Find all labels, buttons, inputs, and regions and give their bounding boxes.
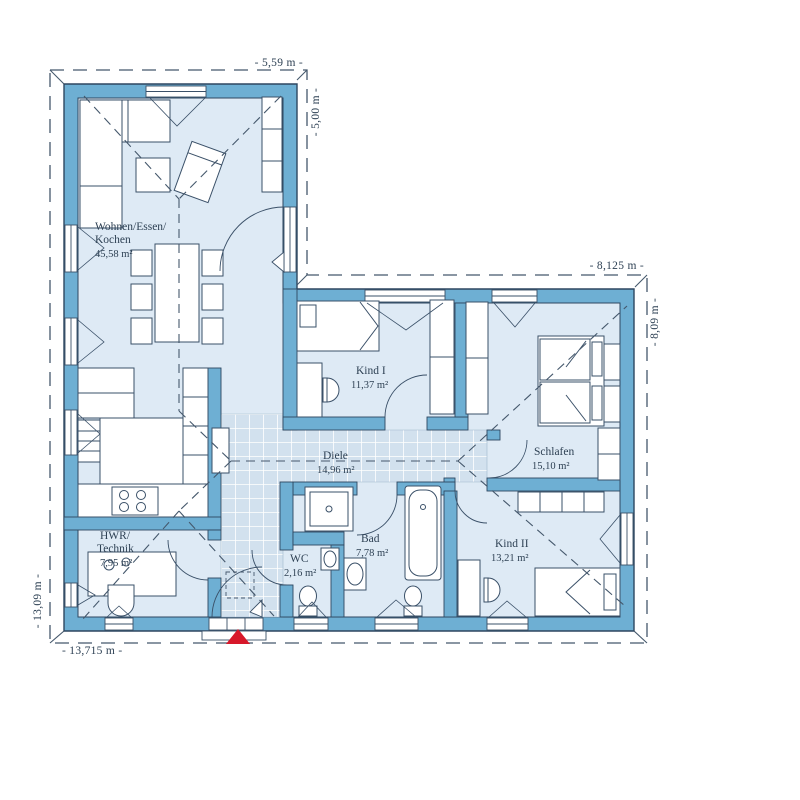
- terrace-door: [284, 207, 296, 272]
- wall-hwr-door-b: [208, 578, 221, 617]
- dim-right-side: - 8,09 m -: [649, 298, 661, 346]
- area-kind2: 13,21 m²: [491, 553, 529, 564]
- wall-wc-top: [293, 532, 344, 545]
- wall-corridor-wc-b: [280, 585, 293, 617]
- wc-sink: [324, 551, 336, 567]
- area-hwr: 7,95 m²: [100, 558, 132, 569]
- kind2-desk: [458, 560, 480, 616]
- wall-kind1-diele-b: [427, 417, 468, 430]
- label-kind2: Kind II: [495, 538, 529, 550]
- dim-wing-top: - 8,125 m -: [590, 260, 644, 272]
- label-hwr-2: Technik: [97, 543, 134, 555]
- dining-table-group: [131, 244, 223, 344]
- floor-plan-page: Wohnen/Essen/ Kochen 45,58 m² Kind I 11,…: [0, 0, 800, 800]
- wc-toilet: [300, 586, 317, 606]
- label-bad: Bad: [361, 533, 380, 545]
- window-schlafen-top: [492, 290, 537, 302]
- label-wohnen: Wohnen/Essen/: [95, 221, 167, 233]
- area-wohnen: 45,58 m²: [95, 249, 133, 260]
- bad-toilet: [405, 586, 422, 606]
- dim-top: - 5,59 m -: [255, 57, 303, 69]
- kitchen-island: [100, 418, 185, 484]
- window-hwr-bottom: [105, 618, 133, 630]
- hall-cabinet: [212, 428, 229, 473]
- label-kind1: Kind I: [356, 365, 386, 377]
- coffee-table: [136, 158, 170, 192]
- dim-right-upper: - 5,00 m -: [310, 88, 322, 136]
- label-hwr: HWR/: [100, 530, 131, 542]
- kind2-wardrobe: [518, 492, 604, 512]
- nightstand-1: [604, 344, 620, 380]
- wall-corridor-wc-a: [280, 482, 293, 550]
- wall-living-kind1: [283, 289, 297, 430]
- stove: [112, 487, 158, 515]
- floor-plan-drawing: Wohnen/Essen/ Kochen 45,58 m² Kind I 11,…: [0, 0, 800, 800]
- window-kind2-bottom: [487, 618, 528, 630]
- wall-hwr-top: [64, 517, 221, 530]
- area-schlafen: 15,10 m²: [532, 461, 570, 472]
- dim-left-side: - 13,09 m -: [32, 574, 44, 628]
- dim-bottom: - 13,715 m -: [62, 645, 122, 657]
- dining-table: [155, 244, 199, 342]
- wall-schlafen-door-stub: [487, 430, 500, 440]
- label-wohnen-2: Kochen: [95, 234, 131, 246]
- area-wc: 2,16 m²: [284, 568, 316, 579]
- wall-bad-kind2: [444, 491, 457, 617]
- wall-hwr-door-a: [208, 530, 221, 540]
- kind1-desk: [297, 363, 322, 417]
- wall-kind1-diele-a: [283, 417, 385, 430]
- tv-sideboard: [262, 97, 282, 192]
- label-wc: WC: [290, 553, 309, 565]
- area-kind1: 11,37 m²: [351, 380, 388, 391]
- window-wc-bottom: [294, 618, 328, 630]
- window-living-left-1: [65, 225, 77, 272]
- label-diele: Diele: [323, 450, 348, 462]
- label-schlafen: Schlafen: [534, 446, 574, 458]
- window-kitchen-left: [65, 410, 77, 455]
- window-kind2-right: [621, 513, 633, 565]
- window-living-left-2: [65, 318, 77, 365]
- area-diele: 14,96 m²: [317, 465, 355, 476]
- area-bad: 7,78 m²: [356, 548, 388, 559]
- nightstand-2: [604, 386, 620, 422]
- window-living-top: [146, 86, 206, 97]
- laundry-sink: [108, 585, 134, 616]
- window-hwr-left: [65, 583, 77, 607]
- window-bad-bottom: [375, 618, 418, 630]
